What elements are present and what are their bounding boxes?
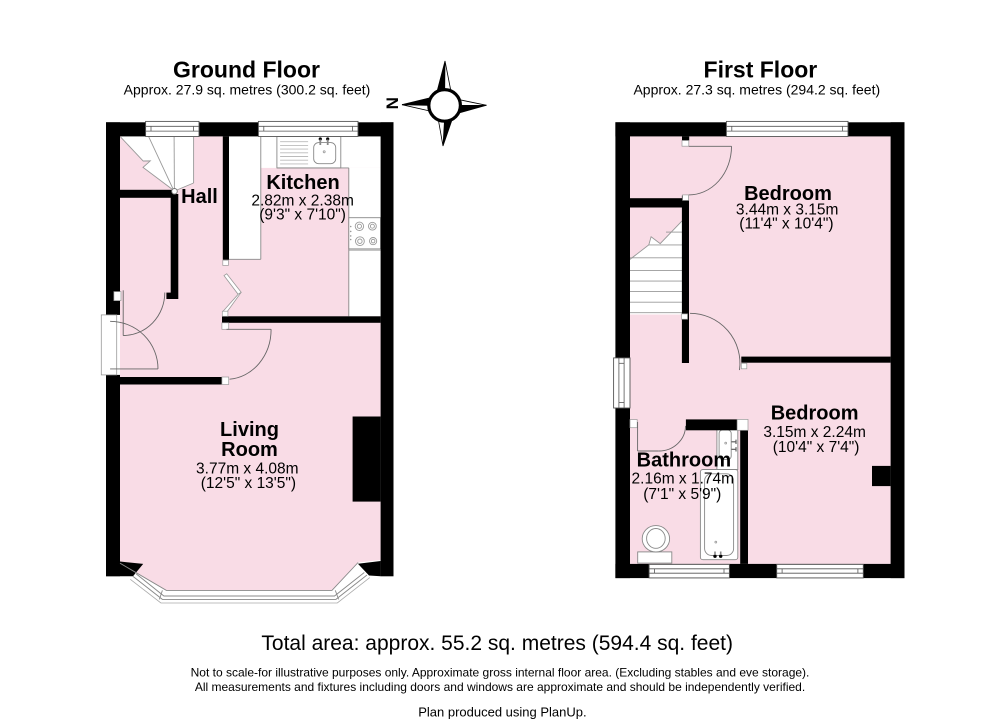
svg-text:(9'3" x 7'10"): (9'3" x 7'10") xyxy=(259,206,346,223)
svg-text:Approx. 27.9 sq. metres (300.2: Approx. 27.9 sq. metres (300.2 sq. feet) xyxy=(124,82,371,98)
svg-text:All measurements and fixtures: All measurements and fixtures including … xyxy=(195,680,805,694)
svg-text:First Floor: First Floor xyxy=(704,56,818,82)
svg-text:2.16m x 1.74m: 2.16m x 1.74m xyxy=(632,470,735,487)
svg-text:Bathroom: Bathroom xyxy=(637,449,731,471)
svg-text:Hall: Hall xyxy=(181,186,218,208)
svg-text:Not to scale-for illustrative: Not to scale-for illustrative purposes o… xyxy=(191,666,810,680)
svg-text:(12'5" x 13'5"): (12'5" x 13'5") xyxy=(201,475,296,492)
svg-text:(10'4" x 7'4"): (10'4" x 7'4") xyxy=(773,439,860,456)
svg-text:(7'1" x 5'9"): (7'1" x 5'9") xyxy=(643,486,721,503)
svg-text:(11'4" x 10'4"): (11'4" x 10'4") xyxy=(739,216,833,233)
svg-text:Room: Room xyxy=(221,439,278,461)
svg-text:Plan produced using PlanUp.: Plan produced using PlanUp. xyxy=(418,704,586,719)
svg-text:Ground Floor: Ground Floor xyxy=(173,56,320,82)
svg-text:N: N xyxy=(383,97,402,109)
svg-text:Total area: approx. 55.2 sq. m: Total area: approx. 55.2 sq. metres (594… xyxy=(261,632,733,655)
svg-text:Approx. 27.3 sq. metres (294.2: Approx. 27.3 sq. metres (294.2 sq. feet) xyxy=(633,82,880,98)
svg-text:Bedroom: Bedroom xyxy=(771,402,859,424)
svg-text:Living: Living xyxy=(220,419,279,441)
svg-text:Kitchen: Kitchen xyxy=(266,172,339,194)
